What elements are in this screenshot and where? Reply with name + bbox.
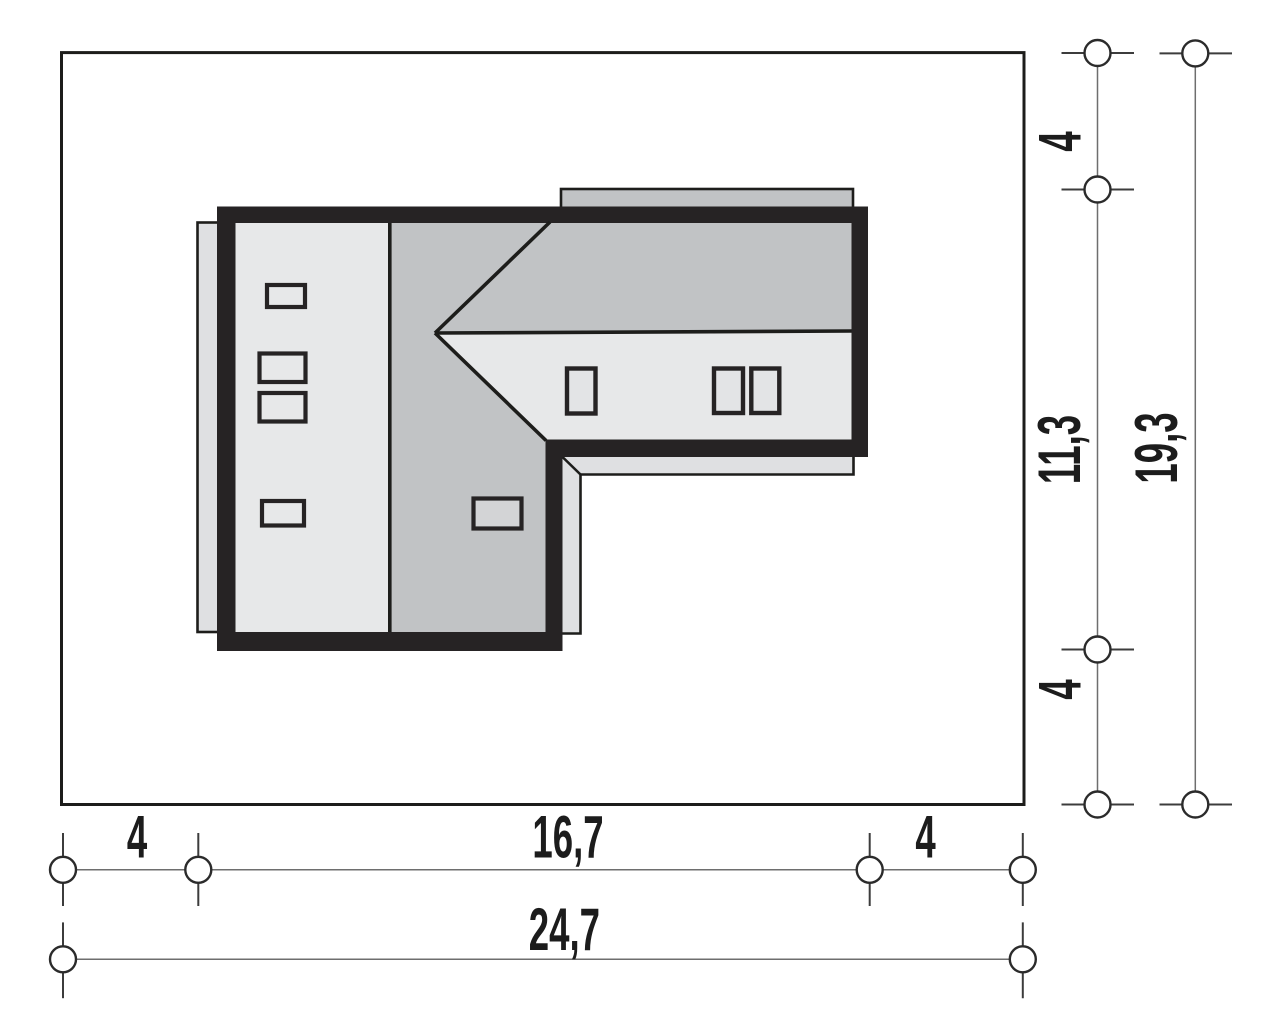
svg-text:4: 4 — [1026, 679, 1094, 700]
svg-text:11,3: 11,3 — [1026, 415, 1094, 484]
svg-text:4: 4 — [915, 803, 936, 871]
svg-text:19,3: 19,3 — [1123, 412, 1191, 483]
svg-text:24,7: 24,7 — [529, 896, 600, 964]
svg-text:16,7: 16,7 — [532, 803, 603, 871]
svg-text:4: 4 — [127, 803, 148, 871]
svg-text:4: 4 — [1026, 131, 1094, 152]
